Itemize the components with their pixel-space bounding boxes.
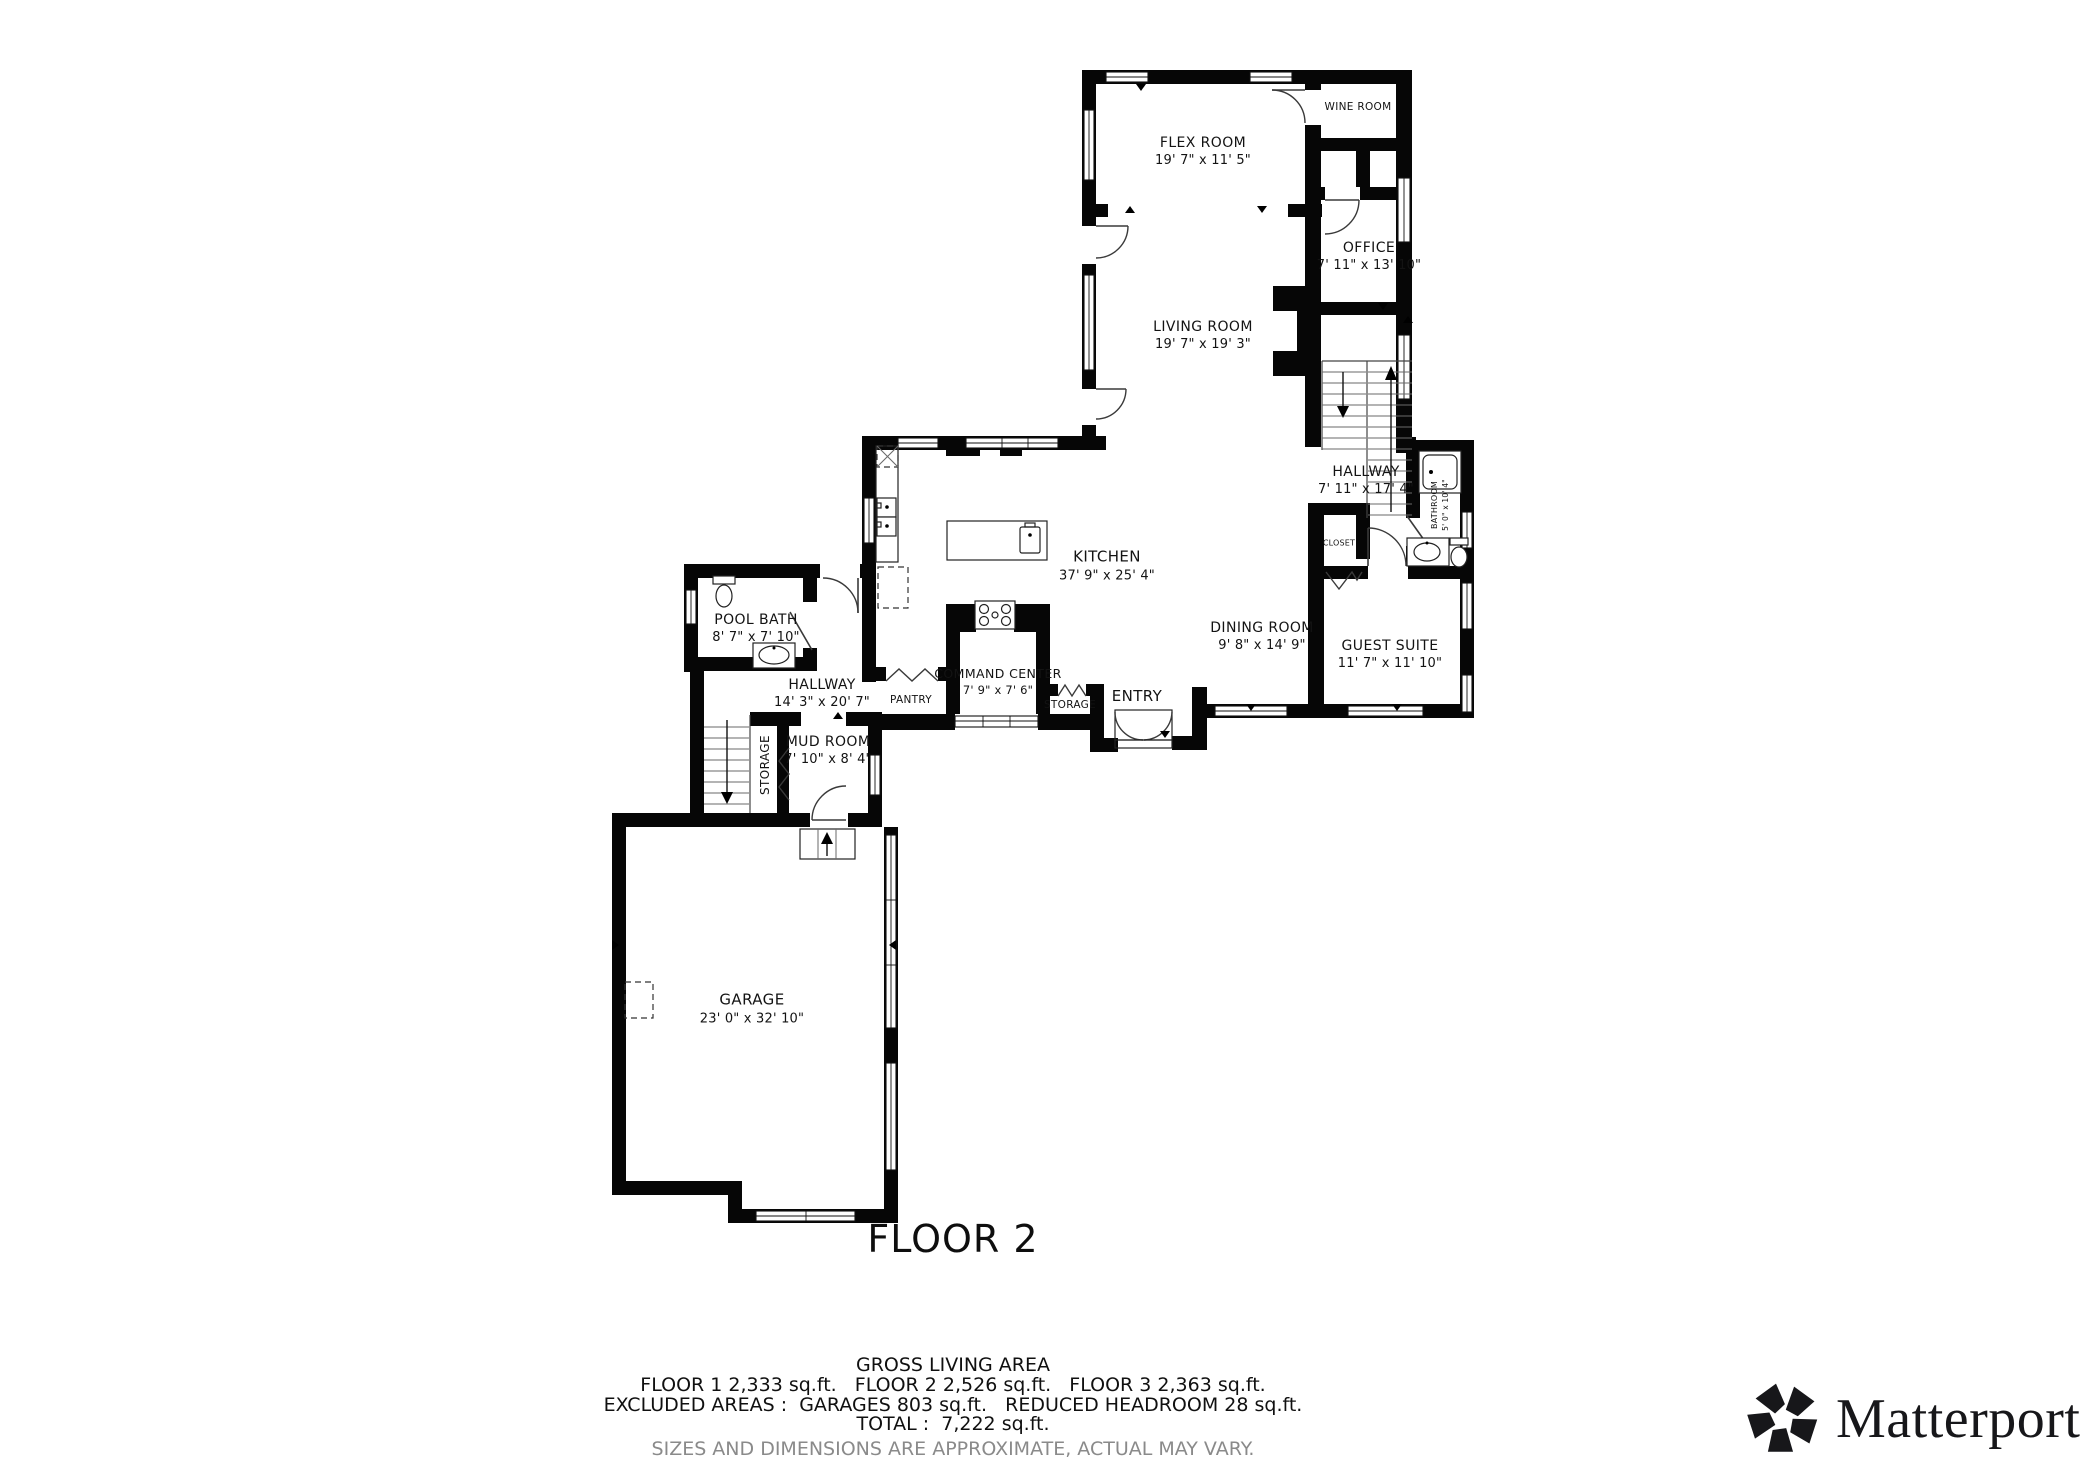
room-dims: 37' 9" x 25' 4" [1059, 567, 1155, 584]
room-label-command-center: COMMAND CENTER 7' 9" x 7' 6" [934, 666, 1061, 698]
room-label-storage-entry: STORAGE [1044, 699, 1096, 713]
room-name: FLEX ROOM [1155, 134, 1251, 152]
room-name: CLOSET [1323, 539, 1355, 550]
room-label-hallway-lower: HALLWAY 14' 3" x 20' 7" [774, 676, 870, 712]
room-name: STORAGE [1044, 699, 1096, 713]
matterport-logo: Matterport ® [1746, 1381, 2080, 1457]
floorplan-page: FLEX ROOM 19' 7" x 11' 5" WINE ROOM OFFI… [0, 0, 2080, 1470]
room-dims: 7' 10" x 8' 4" [784, 752, 871, 769]
room-dims: 5' 0" x 10' 4" [1440, 479, 1450, 531]
floor-title: FLOOR 2 [867, 1217, 1038, 1261]
room-name: BATHROOM [1430, 479, 1441, 531]
room-name: PANTRY [890, 694, 932, 708]
area-summary: GROSS LIVING AREA FLOOR 1 2,333 sq.ft. F… [604, 1356, 1303, 1460]
room-dims: 19' 7" x 11' 5" [1155, 153, 1251, 170]
room-name: MUD ROOM [784, 733, 871, 751]
room-name: COMMAND CENTER [934, 666, 1061, 683]
room-name: GUEST SUITE [1338, 637, 1442, 655]
refrigerator [878, 567, 908, 608]
room-label-living-room: LIVING ROOM 19' 7" x 19' 3" [1153, 318, 1253, 354]
room-dims: 7' 9" x 7' 6" [934, 683, 1061, 698]
summary-total-line: TOTAL : 7,222 sq.ft. [604, 1415, 1303, 1435]
room-label-office: OFFICE 7' 11" x 13' 10" [1317, 239, 1421, 275]
room-dims: 23' 0" x 32' 10" [700, 1010, 804, 1027]
room-dims: 7' 11" x 17' 4" [1318, 482, 1414, 499]
room-dims: 19' 7" x 19' 3" [1153, 337, 1253, 354]
entry-double-door [1115, 710, 1172, 748]
room-dims: 14' 3" x 20' 7" [774, 695, 870, 712]
room-name: DINING ROOM [1210, 619, 1314, 637]
room-label-garage: GARAGE 23' 0" x 32' 10" [700, 991, 804, 1028]
room-label-wine-room: WINE ROOM [1325, 101, 1392, 115]
room-label-flex-room: FLEX ROOM 19' 7" x 11' 5" [1155, 134, 1251, 170]
room-label-pool-bath: POOL BATH 8' 7" x 7' 10" [712, 611, 799, 647]
garage-floor-marker [625, 982, 653, 1018]
room-dims: 9' 8" x 14' 9" [1210, 638, 1314, 655]
brand-wordmark: Matterport [1836, 1387, 2080, 1451]
room-label-closet: CLOSET [1323, 539, 1355, 550]
room-dims: 7' 11" x 13' 10" [1317, 258, 1421, 275]
room-label-kitchen: KITCHEN 37' 9" x 25' 4" [1059, 548, 1155, 585]
room-name: LIVING ROOM [1153, 318, 1253, 336]
room-name: KITCHEN [1059, 548, 1155, 568]
room-label-hallway-upper: HALLWAY 7' 11" x 17' 4" [1318, 463, 1414, 499]
room-dims: 8' 7" x 7' 10" [712, 630, 799, 647]
room-name: GARAGE [700, 991, 804, 1011]
pool-bath-toilet [713, 576, 735, 607]
kitchen-island [947, 521, 1047, 560]
room-label-bathroom: BATHROOM 5' 0" x 10' 4" [1430, 479, 1450, 531]
summary-heading: GROSS LIVING AREA [604, 1356, 1303, 1376]
floor-plan-drawing [0, 0, 2080, 1470]
room-name: POOL BATH [712, 611, 799, 629]
room-label-guest-suite: GUEST SUITE 11' 7" x 11' 10" [1338, 637, 1442, 673]
garage-steps [800, 829, 855, 859]
summary-floors-line: FLOOR 1 2,333 sq.ft. FLOOR 2 2,526 sq.ft… [604, 1376, 1303, 1396]
room-label-entry: ENTRY [1112, 687, 1163, 707]
summary-disclaimer: SIZES AND DIMENSIONS ARE APPROXIMATE, AC… [604, 1440, 1303, 1460]
room-name: STORAGE [758, 735, 774, 795]
room-name: HALLWAY [774, 676, 870, 694]
stove-cooktop [975, 601, 1015, 629]
bathroom-vanity [1407, 538, 1449, 566]
room-label-storage-mud: STORAGE [758, 735, 774, 795]
matterport-pinwheel-icon [1746, 1381, 1820, 1457]
bathroom-toilet [1450, 538, 1468, 567]
room-label-pantry: PANTRY [890, 694, 932, 708]
room-name: HALLWAY [1318, 463, 1414, 481]
room-name: WINE ROOM [1325, 101, 1392, 115]
room-dims: 11' 7" x 11' 10" [1338, 656, 1442, 673]
room-label-dining-room: DINING ROOM 9' 8" x 14' 9" [1210, 619, 1314, 655]
room-name: OFFICE [1317, 239, 1421, 257]
room-label-mud-room: MUD ROOM 7' 10" x 8' 4" [784, 733, 871, 769]
room-name: ENTRY [1112, 687, 1163, 707]
lower-stairs [704, 715, 750, 813]
